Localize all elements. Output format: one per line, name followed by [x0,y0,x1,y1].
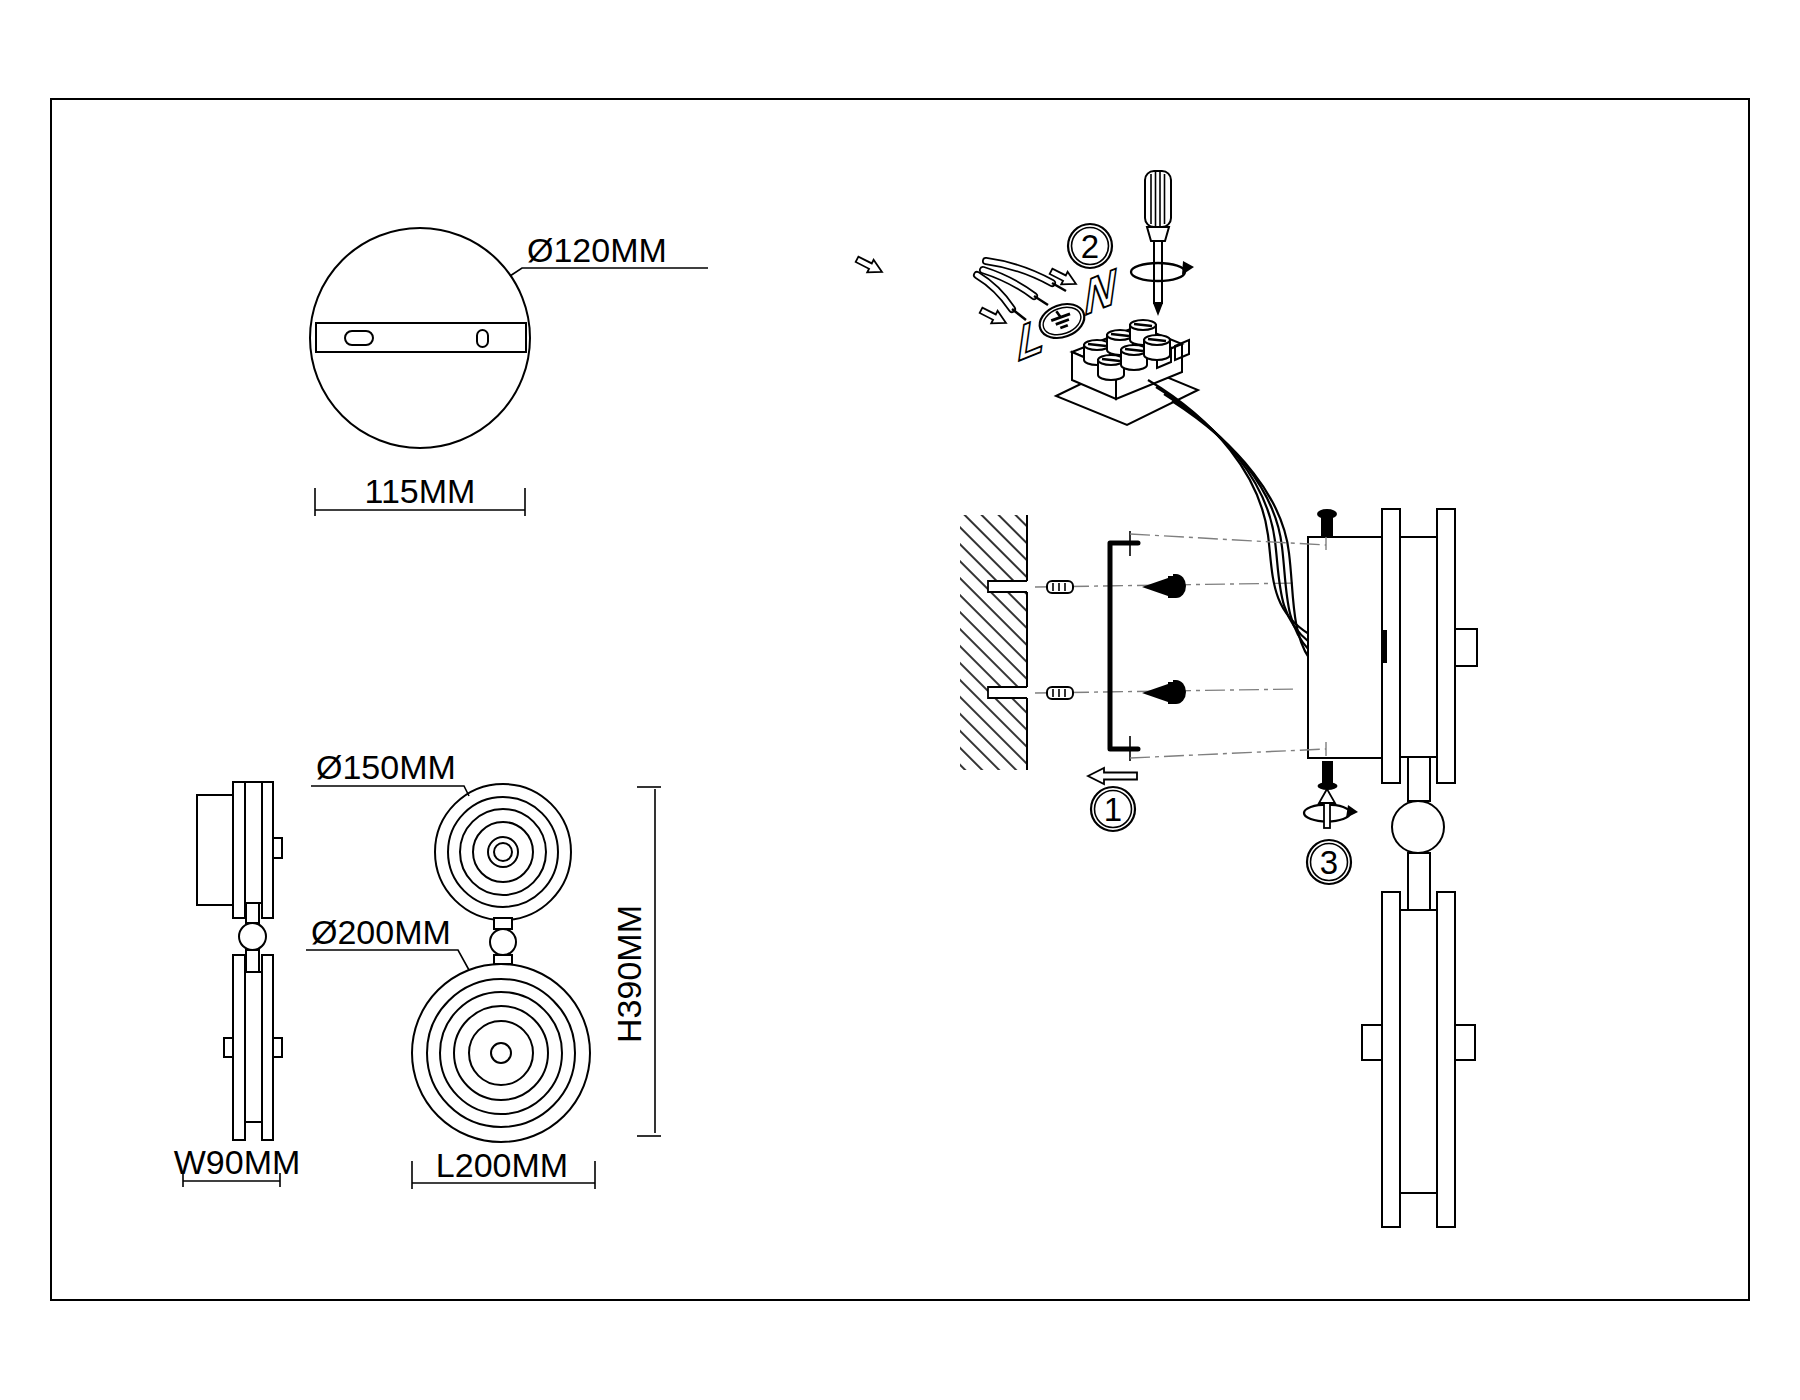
stem [494,918,512,929]
label-fixture-width: W90MM [174,1143,301,1181]
mounting-band [316,323,526,352]
slide-left-arrow-icon [1088,768,1137,784]
ball-joint [1392,801,1444,853]
screwdriver-icon [1131,171,1194,316]
disc-plate [1382,892,1400,1227]
large-disc [412,964,590,1142]
stem [1408,757,1430,801]
wire-insert-arrow-icon [978,304,1009,329]
drill-hole [988,687,1027,698]
alignment-line [1130,534,1326,545]
step-3-number: 3 [1320,844,1338,881]
stem [246,903,259,923]
disc-plate [1437,892,1455,1227]
fixture-side-view: W90MM [174,782,301,1187]
mounting-screw [1142,680,1186,704]
fixing-screw-bottom [1318,761,1338,790]
wall-section [960,515,1027,770]
canopy-top-view: Ø120MM 115MM [310,228,708,516]
leader-line [510,268,708,276]
disc-core-upper [245,782,262,903]
driver-box [1308,537,1382,758]
step-2-badge: 2 [1068,224,1112,268]
disc-plate [233,955,245,1140]
fixing-screw-top [1317,509,1337,537]
dim-fixture-width: W90MM [174,1143,301,1187]
disc-plate [262,782,273,918]
label-canopy-diameter: Ø120MM [527,231,667,269]
side-tab [1362,1025,1382,1060]
dim-fixture-height: H390MM [610,787,661,1136]
label-large-disc: Ø200MM [306,913,469,970]
ball-joint [239,923,266,950]
stem [246,950,259,972]
side-tab [224,1038,233,1057]
svg-text:Ø200MM: Ø200MM [311,913,451,951]
step-1-badge: 1 [1091,787,1135,831]
leader-line [311,786,469,796]
mounting-screw [1142,574,1186,598]
wall-anchor [1047,581,1073,593]
alignment-line [1130,749,1326,758]
terminal-block [1056,320,1198,425]
step-2-number: 2 [1081,228,1099,265]
wire-insert-arrow-icon [854,253,885,278]
stem [494,955,512,964]
drill-hole [988,581,1027,592]
side-tab [1455,1025,1475,1060]
mounting-bracket [1110,531,1138,761]
step-3-badge: 3 [1307,840,1351,884]
stem [1408,853,1430,910]
disc-plate [1437,509,1455,783]
label-small-disc: Ø150MM [311,748,469,796]
dim-fixture-length: L200MM [412,1146,595,1189]
step-1-number: 1 [1104,791,1122,828]
ball-joint [490,929,516,955]
label-fixture-height: H390MM [610,905,648,1043]
terminal-letter-n: N [1081,256,1120,328]
svg-text:Ø150MM: Ø150MM [316,748,456,786]
disc-plate [262,955,273,1140]
leader-line [306,950,469,970]
wall-anchor [1047,687,1073,699]
side-tab [273,838,282,858]
fixture-front-view: Ø150MM Ø200MM H390MM L200MM [306,748,661,1189]
disc-core-lower [1400,910,1437,1193]
label-fixture-length: L200MM [436,1146,568,1184]
disc-plate [233,782,245,918]
side-tab [1455,629,1477,666]
disc-core-lower [245,972,262,1122]
page-border [51,99,1749,1300]
dim-canopy-width: 115MM [315,472,525,516]
small-disc [435,784,571,920]
wire-bundle [1148,380,1309,658]
disc-core-upper [1400,537,1437,757]
label-canopy-width: 115MM [365,472,476,510]
swivel-rotation-icon [1304,789,1358,828]
wall-hatching [960,515,1027,770]
installation-view: 1 N L [854,171,1477,1227]
installation-drawing: Ø120MM 115MM W90MM [0,0,1800,1400]
driver-box [197,795,233,905]
side-tab [273,1038,282,1057]
